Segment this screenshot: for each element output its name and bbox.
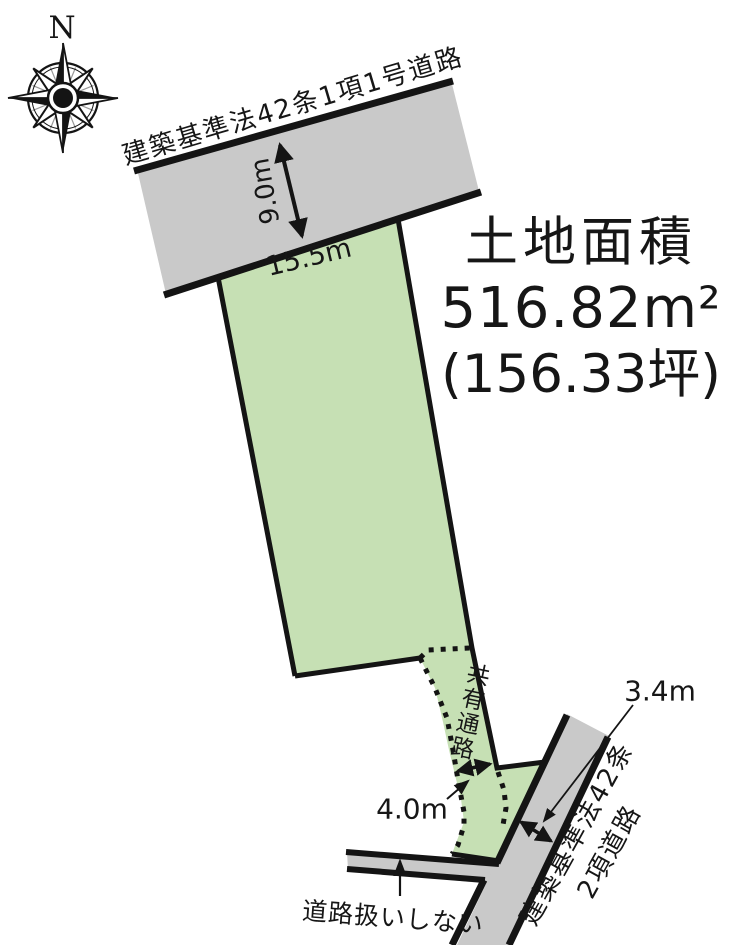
land-area-sqm: 516.82m² [441,276,722,342]
compass-rose-icon [8,43,118,153]
land-area-block: 土地面積 516.82m² (156.33坪) [441,210,722,408]
compass-north-label: N [48,11,75,45]
land-plot-diagram: N 建築基準法42条1項1号道路 9.0m 15.5m 土地面積 516.82m… [0,0,756,945]
diagonal-road-width-label: 3.4m [624,677,696,708]
land-area-tsubo: (156.33坪) [441,342,722,408]
land-area-title: 土地面積 [441,210,722,276]
passage-width-label: 4.0m [376,795,448,826]
